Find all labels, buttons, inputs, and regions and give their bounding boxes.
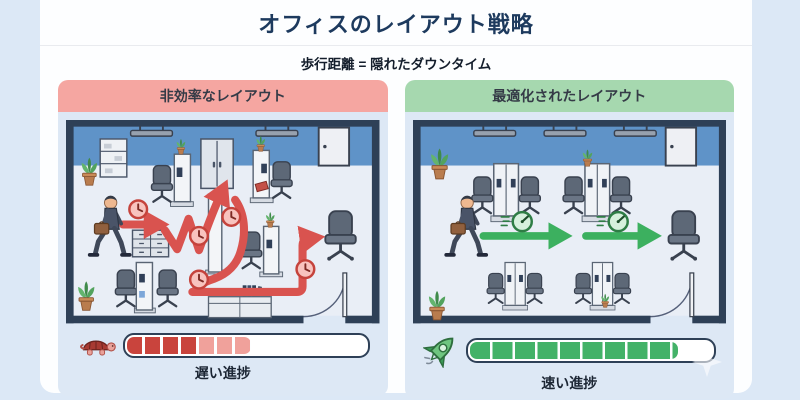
optimized-progress-fill [470,342,679,359]
infographic-card: オフィスのレイアウト戦略 歩行距離 = 隠れたダウンタイム 非効率なレイアウト [40,0,752,393]
panel-inefficient: 非効率なレイアウト [58,80,388,396]
clock-icon [297,260,315,278]
sparkle-watermark [692,347,722,377]
comparison-panels: 非効率なレイアウト [40,78,752,396]
clock-icon [190,271,208,289]
clock-icon [190,227,208,245]
turtle-icon [76,332,116,358]
page-subtitle: 歩行距離 = 隠れたダウンタイム [40,46,752,78]
optimized-panel-body: 速い進捗 [405,112,735,399]
clock-icon [222,208,240,226]
optimized-progress-bar [466,338,717,363]
cabinet-icon [201,139,233,188]
clock-icon [129,200,147,218]
inefficient-panel-body: 遅い進捗 [58,112,388,396]
rocket-icon [423,332,459,368]
optimized-header: 最適化されたレイアウト [405,80,735,112]
optimized-progress-label: 速い進捗 [413,368,727,393]
inefficient-progress-bar [123,333,370,358]
door-icon [665,128,695,166]
page-title: オフィスのレイアウト戦略 [40,0,752,45]
panel-optimized: 最適化されたレイアウト [405,80,735,396]
inefficient-progress-label: 遅い進捗 [66,358,380,383]
inefficient-progress-fill [127,337,251,354]
inefficient-progress-row [76,332,370,358]
door-icon [319,128,349,166]
shelf-icon [100,139,127,177]
inefficient-office-scene [66,120,380,327]
optimized-office-scene [413,120,727,327]
optimized-progress-row [423,332,717,368]
inefficient-header: 非効率なレイアウト [58,80,388,112]
